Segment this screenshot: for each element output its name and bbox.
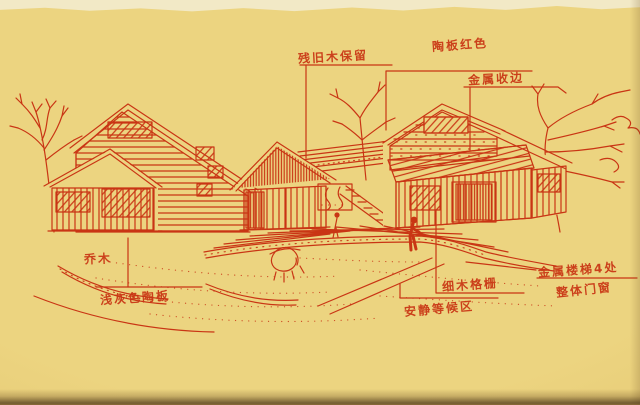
building-right xyxy=(383,104,572,228)
pavilion-centre xyxy=(230,142,336,230)
paper-edge-shade xyxy=(630,0,640,405)
annotation-tree: 乔木 xyxy=(84,250,113,268)
annotation-metal-trim: 金属收边 xyxy=(468,69,525,89)
sketch-paper: 残旧木保留 陶板红色 金属收边 乔木 浅灰色陶板 细木格栅 安静等候区 金属楼梯… xyxy=(0,0,640,405)
small-figure xyxy=(333,212,340,238)
paper-bottom-edge xyxy=(0,389,640,405)
